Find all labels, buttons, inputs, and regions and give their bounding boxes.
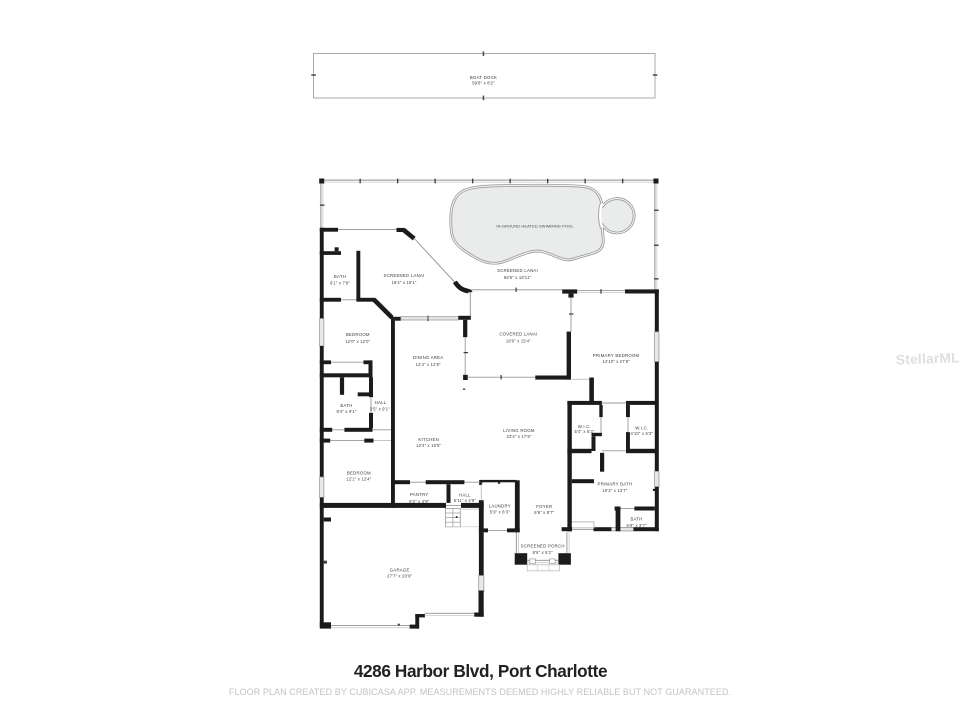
svg-text:HALL: HALL [375, 400, 387, 405]
svg-text:18'0" x 15'4": 18'0" x 15'4" [506, 339, 531, 344]
svg-text:BATH: BATH [334, 274, 346, 279]
svg-text:LIVING ROOM: LIVING ROOM [503, 428, 535, 433]
svg-text:BATH: BATH [340, 403, 352, 408]
svg-text:KITCHEN: KITCHEN [418, 437, 439, 442]
svg-text:22'4" x 17'9": 22'4" x 17'9" [506, 434, 531, 439]
svg-text:BATH: BATH [631, 517, 643, 522]
svg-text:5'4" x 6'3": 5'4" x 6'3" [574, 429, 594, 434]
svg-text:4'10" x 6'3": 4'10" x 6'3" [631, 431, 654, 436]
svg-text:BOAT DOCK: BOAT DOCK [470, 75, 497, 80]
svg-text:3'5" x 9'1": 3'5" x 9'1" [370, 406, 390, 411]
svg-text:8'6" x 5'2": 8'6" x 5'2" [533, 550, 553, 555]
svg-text:PANTRY: PANTRY [410, 492, 429, 497]
svg-text:5'9" x 8'3": 5'9" x 8'3" [490, 510, 510, 515]
svg-text:HALL: HALL [459, 492, 471, 497]
svg-text:5'11" x 4'9": 5'11" x 4'9" [454, 498, 477, 503]
svg-text:12'0" x 12'0": 12'0" x 12'0" [345, 339, 370, 344]
svg-text:SCREENED LANAI: SCREENED LANAI [497, 268, 538, 273]
svg-text:10'3" x 13'7": 10'3" x 13'7" [602, 488, 627, 493]
svg-text:12'1" x 12'4": 12'1" x 12'4" [346, 477, 371, 482]
svg-text:9'2" x 4'9": 9'2" x 4'9" [409, 499, 429, 504]
svg-text:COVERED LANAI: COVERED LANAI [499, 332, 537, 337]
svg-text:StellarMLS: StellarMLS [896, 350, 960, 368]
svg-text:12'4" x 15'5": 12'4" x 15'5" [416, 443, 441, 448]
svg-text:18'4" x 15'1": 18'4" x 15'1" [391, 280, 416, 285]
svg-text:W.I.C.: W.I.C. [635, 425, 648, 430]
svg-text:BEDROOM: BEDROOM [346, 332, 370, 337]
svg-text:27'7" x 20'9": 27'7" x 20'9" [387, 573, 412, 578]
svg-text:PRIMARY BEDROOM: PRIMARY BEDROOM [593, 353, 640, 358]
svg-text:14'10" x 27'9": 14'10" x 27'9" [602, 359, 630, 364]
svg-text:6'9" x 3'7": 6'9" x 3'7" [627, 523, 647, 528]
svg-text:8'6" x 8'7": 8'6" x 8'7" [534, 510, 554, 515]
svg-text:12'4" x 12'9": 12'4" x 12'9" [416, 362, 441, 367]
svg-text:FLOOR PLAN CREATED BY CUBICASA: FLOOR PLAN CREATED BY CUBICASA APP. MEAS… [229, 687, 731, 697]
svg-text:8'4" x 9'1": 8'4" x 9'1" [336, 409, 356, 414]
svg-text:6'1" x 7'9": 6'1" x 7'9" [330, 280, 350, 285]
svg-text:IN-GROUND HEATED SWIMMING POOL: IN-GROUND HEATED SWIMMING POOL [496, 224, 574, 229]
svg-text:PRIMARY BATH: PRIMARY BATH [598, 482, 633, 487]
svg-text:FOYER: FOYER [536, 504, 552, 509]
svg-text:59'8" x 8'2": 59'8" x 8'2" [472, 81, 495, 86]
svg-text:LAUNDRY: LAUNDRY [489, 503, 511, 508]
svg-text:4286 Harbor Blvd, Port Charlot: 4286 Harbor Blvd, Port Charlotte [354, 661, 607, 681]
svg-text:SCREENED PORCH: SCREENED PORCH [521, 544, 565, 549]
svg-text:DINING AREA: DINING AREA [413, 355, 443, 360]
svg-text:GARAGE: GARAGE [390, 568, 410, 573]
svg-text:58'5" x 18'11": 58'5" x 18'11" [504, 275, 532, 280]
svg-text:SCREENED LANAI: SCREENED LANAI [384, 273, 425, 278]
svg-text:BEDROOM: BEDROOM [347, 471, 371, 476]
